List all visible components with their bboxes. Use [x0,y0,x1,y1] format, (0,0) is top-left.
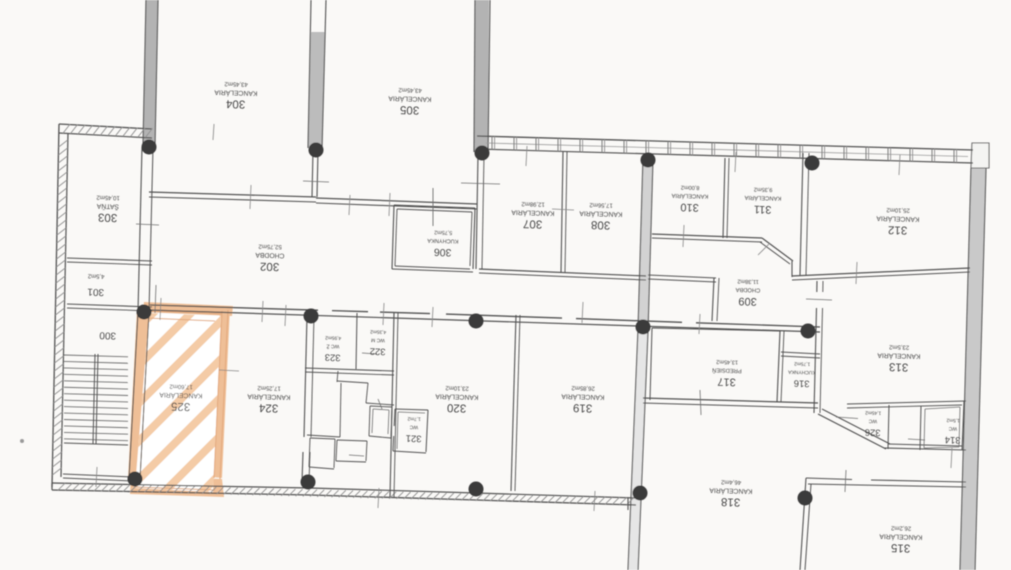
svg-text:46,4m2: 46,4m2 [720,478,741,485]
svg-text:322: 322 [370,345,386,356]
svg-text:11,38m2: 11,38m2 [737,278,759,285]
svg-text:26,2m2: 26,2m2 [890,524,911,531]
svg-text:8,00m2: 8,00m2 [681,184,700,190]
svg-text:311: 311 [754,203,772,215]
svg-text:KANCELÁRIA: KANCELÁRIA [671,192,708,200]
svg-text:326: 326 [865,426,881,437]
svg-text:1,7m2: 1,7m2 [407,415,421,421]
svg-text:23,10m2: 23,10m2 [445,384,469,391]
svg-text:1,75m2: 1,75m2 [794,360,810,366]
svg-text:310: 310 [680,201,699,213]
svg-text:12,98m2: 12,98m2 [521,200,545,207]
svg-text:WC: WC [868,418,877,424]
svg-text:323: 323 [325,351,341,362]
svg-text:PREDSIEŇ: PREDSIEŇ [712,366,742,374]
svg-text:23,5m2: 23,5m2 [888,343,909,350]
svg-text:4,35m2: 4,35m2 [370,328,386,334]
svg-text:1,5m2: 1,5m2 [946,417,960,423]
svg-text:315: 315 [891,541,910,553]
svg-text:5,75m2: 5,75m2 [434,229,452,235]
svg-text:52,75m2: 52,75m2 [258,243,282,250]
svg-text:304: 304 [225,97,245,110]
svg-text:314: 314 [945,434,961,445]
svg-text:WC: WC [948,425,957,431]
svg-text:318: 318 [721,495,740,507]
svg-text:309: 309 [738,295,757,307]
svg-text:KUCHYNKA: KUCHYNKA [427,237,458,244]
svg-text:302: 302 [260,260,279,272]
svg-text:43,45m2: 43,45m2 [398,86,422,93]
svg-text:305: 305 [400,103,419,115]
svg-text:26,85m2: 26,85m2 [571,384,595,391]
svg-text:CHODBA: CHODBA [255,251,285,259]
svg-text:325: 325 [171,400,190,412]
svg-text:17,25m2: 17,25m2 [257,384,281,391]
svg-text:1,45m2: 1,45m2 [865,409,881,415]
svg-text:17,56m2: 17,56m2 [589,201,613,208]
svg-text:WC M: WC M [371,337,385,343]
svg-text:307: 307 [523,217,542,229]
svg-text:CHODBA: CHODBA [735,286,760,293]
svg-text:321: 321 [406,432,422,443]
svg-text:25,10m2: 25,10m2 [886,206,910,213]
svg-text:312: 312 [888,223,907,235]
svg-text:43,45m2: 43,45m2 [224,80,248,87]
svg-text:306: 306 [434,246,452,258]
svg-text:301: 301 [87,286,104,297]
svg-text:KUCHYNKA: KUCHYNKA [787,368,816,375]
svg-text:303: 303 [98,211,117,223]
svg-text:319: 319 [573,401,592,413]
svg-text:9,35m2: 9,35m2 [754,186,773,192]
svg-text:4,5m2: 4,5m2 [87,272,104,278]
svg-text:KANCELÁRIA: KANCELÁRIA [744,194,781,202]
svg-text:308: 308 [591,218,610,230]
svg-text:WC: WC [409,424,418,430]
svg-text:320: 320 [447,401,466,413]
svg-text:316: 316 [794,377,810,388]
svg-text:4,95m2: 4,95m2 [325,334,341,340]
svg-text:10,45m2: 10,45m2 [96,194,120,201]
svg-text:300: 300 [99,329,116,340]
svg-text:313: 313 [889,360,908,372]
svg-text:324: 324 [258,401,278,414]
svg-text:17,60m2: 17,60m2 [169,383,193,390]
svg-text:317: 317 [717,375,736,387]
svg-text:13,45m2: 13,45m2 [716,358,738,365]
